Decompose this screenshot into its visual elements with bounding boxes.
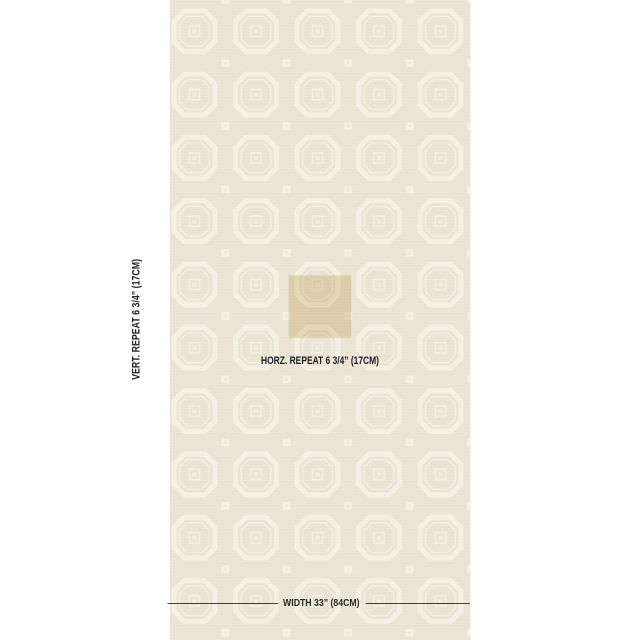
svg-text:HORZ. REPEAT 6 3/4” (17CM): HORZ. REPEAT 6 3/4” (17CM) [261,355,379,367]
svg-text:WIDTH 33” (84CM): WIDTH 33” (84CM) [283,598,360,609]
svg-text:VERT. REPEAT 6 3/4” (17CM): VERT. REPEAT 6 3/4” (17CM) [131,259,143,380]
